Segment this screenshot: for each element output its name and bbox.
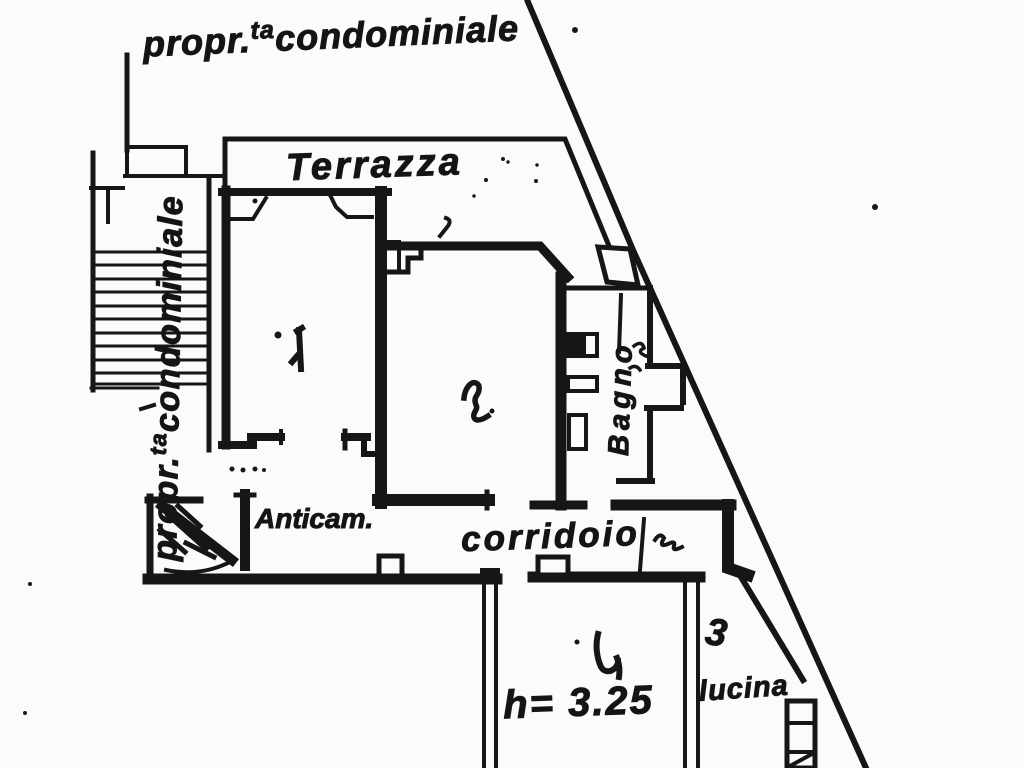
svg-text:Anticam.: Anticam. xyxy=(254,503,373,534)
svg-text:Terrazza: Terrazza xyxy=(285,141,463,189)
svg-text:corridoio: corridoio xyxy=(460,514,640,559)
svg-text:h= 3.25: h= 3.25 xyxy=(502,678,654,727)
svg-text:Bagno: Bagno xyxy=(603,340,639,456)
svg-text:lucina: lucina xyxy=(698,670,790,708)
